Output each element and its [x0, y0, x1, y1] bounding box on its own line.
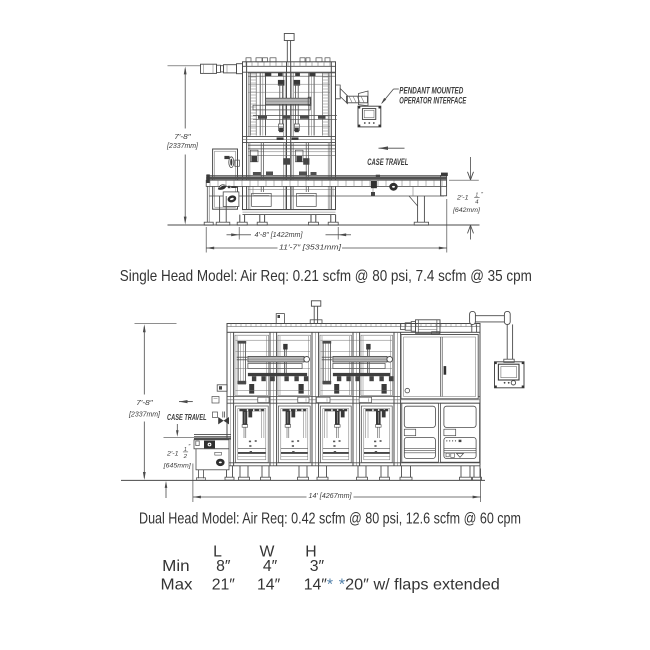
svg-text:8″: 8″: [216, 558, 231, 575]
svg-text:4″: 4″: [263, 558, 278, 575]
svg-text:[2337mm]: [2337mm]: [128, 411, 161, 418]
svg-text:Single Head Model: Air Req: 0.: Single Head Model: Air Req: 0.21 scfm @ …: [120, 268, 532, 285]
svg-text:*20″ w/ flaps extended: *20″ w/ flaps extended: [339, 577, 500, 594]
svg-text:2′-1: 2′-1: [166, 450, 179, 457]
svg-text:7′-8″: 7′-8″: [174, 134, 191, 141]
svg-text:4′-8″ [1422mm]: 4′-8″ [1422mm]: [255, 232, 304, 239]
svg-text:PENDANT MOUNTED: PENDANT MOUNTED: [399, 85, 463, 95]
svg-text:Min: Min: [162, 558, 190, 575]
svg-text:Max: Max: [161, 577, 193, 594]
svg-text:14″: 14″: [257, 577, 281, 594]
svg-text:4: 4: [475, 200, 478, 206]
svg-text:[2337mm]: [2337mm]: [166, 143, 199, 150]
svg-text:Dual Head Model: Air Req: 0.42: Dual Head Model: Air Req: 0.42 scfm @ 80…: [139, 511, 521, 528]
svg-text:2: 2: [183, 454, 188, 460]
svg-text:2′-1: 2′-1: [456, 194, 469, 201]
svg-text:14″*: 14″*: [304, 577, 333, 594]
svg-text:CASE TRAVEL: CASE TRAVEL: [167, 413, 207, 422]
svg-text:11′-7″ [3531mm]: 11′-7″ [3531mm]: [279, 245, 342, 252]
svg-text:[645mm]: [645mm]: [163, 462, 192, 469]
svg-text:3″: 3″: [310, 558, 325, 575]
svg-text:21″: 21″: [212, 577, 236, 594]
svg-text:14′ [4267mm]: 14′ [4267mm]: [309, 493, 353, 500]
svg-text:7′-8″: 7′-8″: [136, 400, 153, 407]
svg-text:[642mm]: [642mm]: [452, 207, 481, 214]
svg-text:CASE TRAVEL: CASE TRAVEL: [367, 157, 408, 167]
svg-text:OPERATOR INTERFACE: OPERATOR INTERFACE: [399, 96, 467, 106]
